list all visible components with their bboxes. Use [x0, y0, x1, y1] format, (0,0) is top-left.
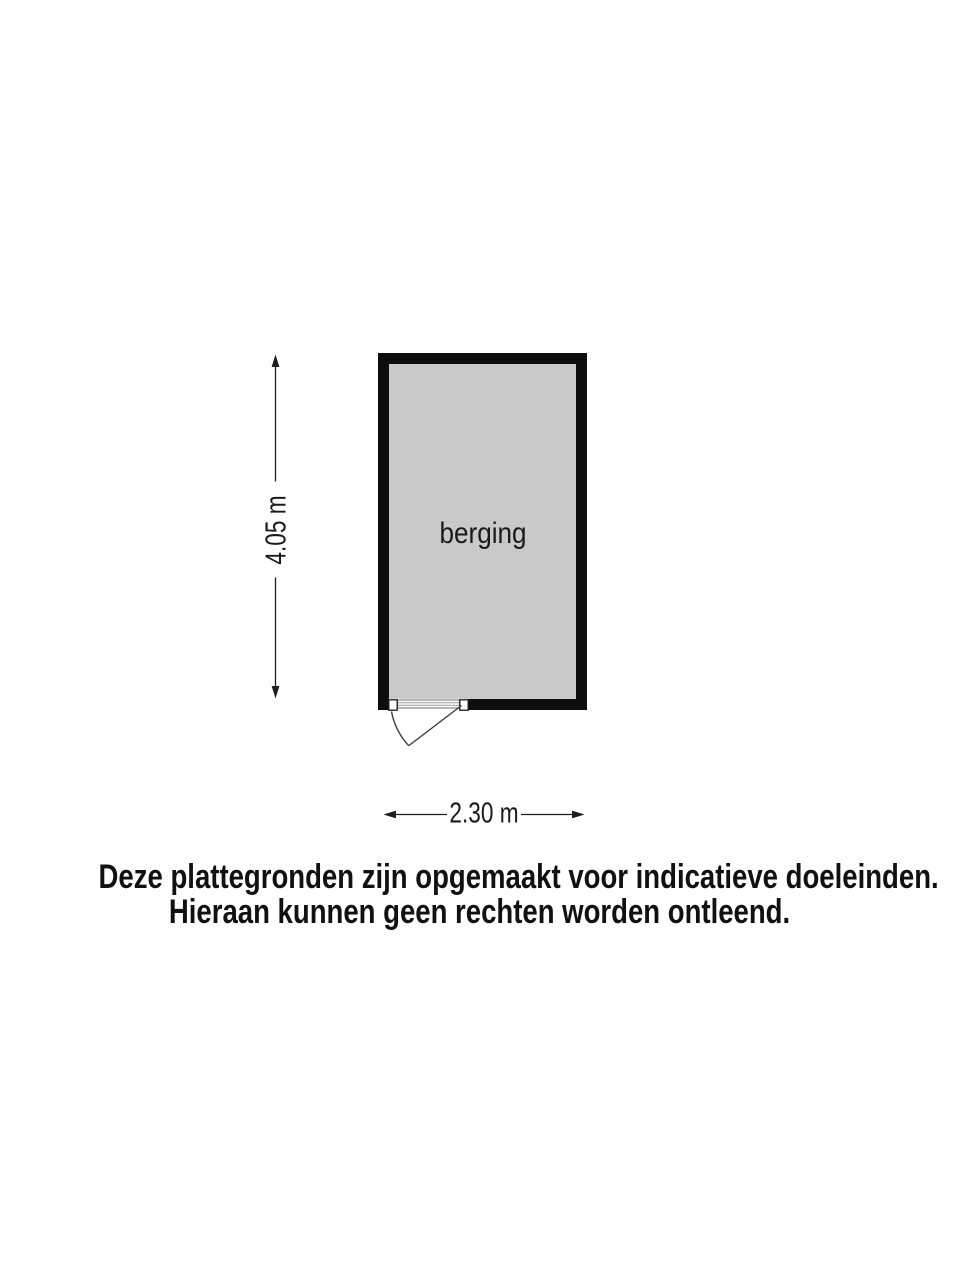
disclaimer: Deze plattegronden zijn opgemaakt voor i… — [0, 860, 960, 930]
door-leaf — [409, 706, 462, 746]
disclaimer-line-1: Deze plattegronden zijn opgemaakt voor i… — [0, 860, 960, 895]
disclaimer-line-2: Hieraan kunnen geen rechten worden ontle… — [0, 895, 960, 930]
height-dimension-label: 4.05 m — [261, 495, 294, 564]
arrowhead-left-icon — [384, 811, 397, 819]
room-label: berging — [439, 517, 526, 551]
arrowhead-up-icon — [272, 355, 280, 368]
width-dimension-label: 2.30 m — [449, 798, 518, 831]
door-jamb-left — [389, 700, 397, 710]
arrowhead-right-icon — [572, 811, 585, 819]
arrowhead-down-icon — [272, 686, 280, 699]
disclaimer-line-2-text: Hieraan kunnen geen rechten worden ontle… — [169, 895, 790, 930]
door-swing-arc — [392, 712, 409, 746]
door-threshold — [398, 700, 460, 708]
floorplan-drawing — [0, 0, 960, 1280]
floorplan-page: berging 4.05 m 2.30 m Deze plattegronden… — [0, 0, 960, 1280]
disclaimer-line-1-text: Deze plattegronden zijn opgemaakt voor i… — [99, 860, 939, 895]
